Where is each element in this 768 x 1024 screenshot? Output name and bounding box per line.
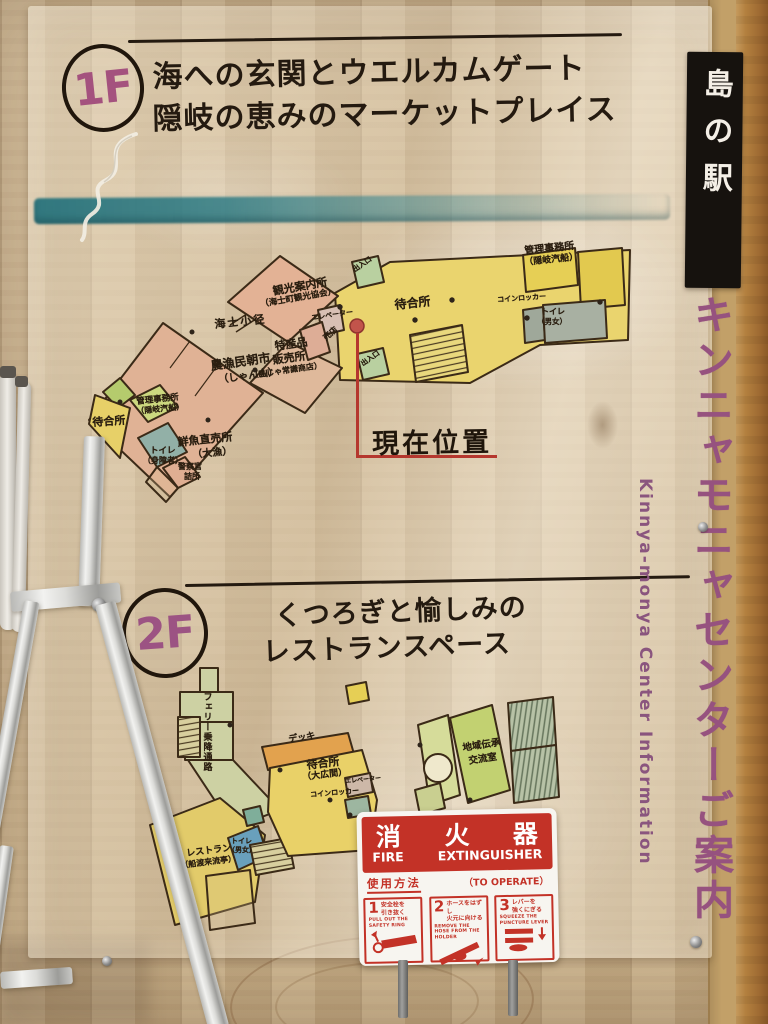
map-label-toilet-west: トイレ [150, 447, 176, 456]
map-label-toilet-2f-sub: （男女） [228, 847, 256, 854]
center-name-english-vertical: Kinnya-monya Center Information [636, 478, 653, 866]
map-label-police: 警察官 [178, 463, 202, 471]
fire-step-1-text-jp: 安全栓を引き抜く [381, 901, 405, 916]
fire-step-2-text-en: REMOVE THE HOSE FROM THE HOLDER [434, 923, 484, 941]
pole-cap [15, 376, 28, 387]
map-label-toilet-east-sub: （男女） [537, 318, 567, 326]
pull-pin-illustration [369, 928, 420, 955]
fire-step-2: 2 ホースをはずし火元に向ける REMOVE THE HOSE FROM THE… [429, 895, 489, 962]
fire-sign-title-char: 火 [444, 823, 470, 849]
fire-extinguisher-sign: 消 火 器 FIRE EXTINGUISHER 使用方法 （TO OPERATE… [356, 808, 559, 966]
fire-step-3-number: 3 [499, 899, 510, 913]
map-label-toilet-west-sub: （身障者） [143, 457, 183, 465]
fire-sign-title-en-word: EXTINGUISHER [438, 848, 543, 863]
current-location-dot [350, 319, 364, 333]
fire-step-1: 1 安全栓を引き抜く PULL OUT THE SAFETY RING [363, 897, 423, 964]
map-label-waiting-west: 待合所 [92, 415, 126, 429]
fire-sign-usage-en: （TO OPERATE） [463, 873, 549, 889]
map-label-toilet-east: トイレ [541, 308, 565, 316]
fire-sign-title-en: FIRE EXTINGUISHER [362, 846, 552, 864]
fire-step-2-text-jp: ホースをはずし火元に向ける [446, 899, 484, 922]
aim-hose-illustration [435, 939, 486, 966]
floor1-map-drawing [70, 228, 670, 508]
fire-step-3-text-jp: レバーを強くにぎる [512, 898, 542, 914]
hanging-string [58, 128, 158, 243]
squeeze-lever-illustration [500, 925, 551, 952]
board-screw [690, 936, 702, 948]
building-main-terminal [228, 248, 630, 413]
pole-cap [0, 366, 16, 378]
map-label-police-2: 詰所 [184, 473, 200, 481]
fire-sign-steps: 1 安全栓を引き抜く PULL OUT THE SAFETY RING 2 [363, 894, 554, 964]
floor1-badge-text: 1F [71, 60, 135, 117]
board-screw [102, 956, 112, 966]
station-name-banner: 島の駅 [685, 52, 743, 289]
fire-step-1-number: 1 [368, 902, 379, 916]
fire-sign-title-en-word: FIRE [372, 851, 404, 864]
fire-sign-post-right [508, 960, 518, 1016]
center-name-vertical: キンニャモニャセンターご案内 [690, 294, 730, 924]
board-screw [698, 522, 708, 532]
fire-sign-post-left [398, 960, 408, 1018]
photo-scene: 1F 海への玄関とウエルカムゲート 隠岐の恵みのマーケットプレイス [0, 0, 768, 1024]
fire-sign-usage-row: 使用方法 （TO OPERATE） [363, 869, 553, 896]
fire-sign-header: 消 火 器 FIRE EXTINGUISHER [362, 813, 553, 873]
fire-sign-title-char: 消 [376, 824, 402, 850]
fire-sign-usage-jp: 使用方法 [367, 875, 421, 894]
fire-sign-title-char: 器 [513, 822, 539, 848]
map-label-ferry-corridor: フェリー乗降通路 [201, 692, 210, 772]
fire-step-2-number: 2 [434, 900, 445, 914]
building-west [89, 323, 263, 502]
station-name-text: 島の駅 [691, 52, 737, 288]
fire-step-3: 3 レバーを強くにぎる SQUEEZE THE PUNCTURE LEVER [494, 894, 554, 961]
current-location-line-vertical [356, 333, 359, 457]
map-label-toilet-2f: トイレ [231, 838, 252, 845]
current-location-label: 現在位置 [372, 420, 493, 461]
